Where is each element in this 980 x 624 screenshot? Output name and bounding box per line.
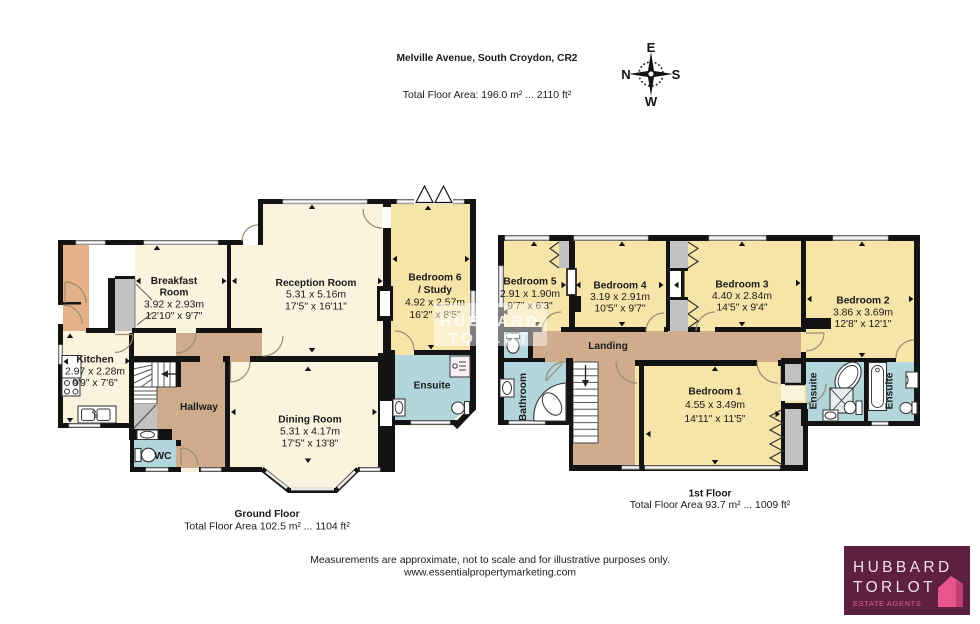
svg-text:Bedroom 5: Bedroom 5 <box>503 277 557 288</box>
svg-text:Total Floor Area 102.5 m² ...: Total Floor Area 102.5 m² ... 1104 ft² <box>184 522 350 533</box>
svg-text:Ensuite: Ensuite <box>885 372 896 409</box>
svg-text:Reception Room: Reception Room <box>276 278 357 289</box>
svg-text:W: W <box>645 94 658 109</box>
svg-text:S: S <box>672 67 681 82</box>
svg-text:2.97 x 2.28m: 2.97 x 2.28m <box>65 367 125 378</box>
svg-text:5.31 x 5.16m: 5.31 x 5.16m <box>286 290 346 301</box>
svg-text:5.31 x 4.17m: 5.31 x 4.17m <box>280 427 340 438</box>
svg-text:Breakfast: Breakfast <box>151 276 198 287</box>
svg-text:Room: Room <box>160 288 189 299</box>
svg-text:Bathroom: Bathroom <box>518 373 529 421</box>
svg-text:4.40 x 2.84m: 4.40 x 2.84m <box>712 291 772 302</box>
svg-text:9'9" x 7'6": 9'9" x 7'6" <box>72 378 118 389</box>
svg-text:14'5" x 9'4": 14'5" x 9'4" <box>716 303 768 314</box>
svg-text:Hallway: Hallway <box>180 402 218 413</box>
svg-text:Ensuite: Ensuite <box>809 372 820 409</box>
svg-text:Landing: Landing <box>588 341 628 352</box>
svg-text:/ Study: / Study <box>418 285 452 296</box>
svg-text:Ensuite: Ensuite <box>414 381 451 392</box>
svg-text:Total Floor Area: 196.0 m² ...: Total Floor Area: 196.0 m² ... 2110 ft² <box>403 90 572 101</box>
svg-text:3.19 x 2.91m: 3.19 x 2.91m <box>590 292 650 303</box>
svg-text:TORLOT: TORLOT <box>449 330 531 347</box>
svg-text:HUBBARD: HUBBARD <box>440 313 540 330</box>
svg-text:Bedroom 1: Bedroom 1 <box>688 387 742 398</box>
svg-text:WC: WC <box>155 451 173 462</box>
svg-text:14'11" x 11'5": 14'11" x 11'5" <box>684 414 746 425</box>
svg-text:www.essentialpropertymarketing: www.essentialpropertymarketing.com <box>403 568 576 579</box>
svg-text:4.55 x 3.49m: 4.55 x 3.49m <box>685 400 745 411</box>
svg-text:Bedroom 4: Bedroom 4 <box>593 281 647 292</box>
svg-text:3.86 x 3.69m: 3.86 x 3.69m <box>833 308 893 319</box>
svg-text:Bedroom 2: Bedroom 2 <box>836 296 890 307</box>
svg-text:12'8" x 12'1": 12'8" x 12'1" <box>835 319 892 330</box>
svg-text:Melville Avenue, South Croydon: Melville Avenue, South Croydon, CR2 <box>397 53 578 64</box>
svg-text:Kitchen: Kitchen <box>76 355 113 366</box>
svg-text:Ground Floor: Ground Floor <box>234 509 299 520</box>
svg-text:TORLOT: TORLOT <box>853 579 936 596</box>
svg-text:Bedroom 6: Bedroom 6 <box>408 273 462 284</box>
svg-text:17'5" x 13'8": 17'5" x 13'8" <box>282 439 339 450</box>
svg-text:Measurements are approximate,: Measurements are approximate, not to sca… <box>310 555 670 566</box>
svg-text:17'5" x 16'11": 17'5" x 16'11" <box>285 302 347 313</box>
svg-text:3.92 x 2.93m: 3.92 x 2.93m <box>144 300 204 311</box>
svg-text:HUBBARD: HUBBARD <box>853 559 953 576</box>
svg-text:E: E <box>647 40 656 55</box>
svg-text:N: N <box>621 67 630 82</box>
svg-text:10'5" x 9'7": 10'5" x 9'7" <box>594 304 646 315</box>
svg-text:Dining Room: Dining Room <box>278 415 341 426</box>
svg-text:Bedroom 3: Bedroom 3 <box>715 280 769 291</box>
svg-text:ESTATE AGENTS: ESTATE AGENTS <box>853 599 921 608</box>
svg-text:12'10" x 9'7": 12'10" x 9'7" <box>146 311 203 322</box>
svg-text:2.91 x 1.90m: 2.91 x 1.90m <box>500 289 560 300</box>
svg-text:Total Floor Area 93.7 m² ... 1: Total Floor Area 93.7 m² ... 1009 ft² <box>630 500 791 511</box>
svg-text:1st Floor: 1st Floor <box>688 489 731 500</box>
